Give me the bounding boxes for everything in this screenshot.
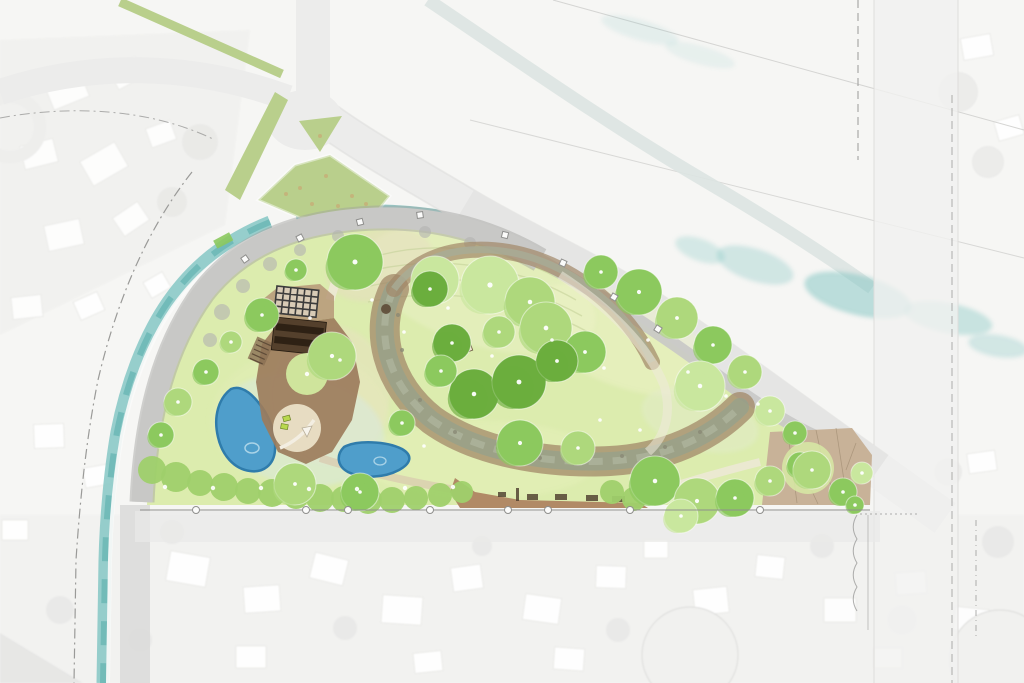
tree xyxy=(846,496,864,514)
meadow-dot xyxy=(446,306,450,310)
context-house xyxy=(236,646,266,668)
meadow-dot xyxy=(724,394,728,398)
tree xyxy=(792,451,831,489)
planting-speckle xyxy=(336,204,340,208)
street-east-vertical xyxy=(874,0,958,683)
context-house xyxy=(553,647,584,671)
tree xyxy=(147,422,174,448)
pergola xyxy=(274,286,319,317)
promenade-texture xyxy=(236,279,250,293)
tree-canopy-shade xyxy=(727,362,754,389)
planting-speckle xyxy=(298,186,302,190)
tree-center-dot xyxy=(768,409,772,413)
tree xyxy=(496,420,543,466)
lawn-dot xyxy=(259,486,263,490)
tree-center-dot xyxy=(768,479,772,483)
lawn-dot xyxy=(163,485,167,489)
tree-center-dot xyxy=(159,433,163,437)
tree-center-dot xyxy=(487,282,492,287)
meadow-dot xyxy=(422,444,426,448)
lawn-dot xyxy=(451,485,455,489)
tree-center-dot xyxy=(698,384,703,389)
site-plan-svg xyxy=(0,0,1024,683)
meadow-dot xyxy=(646,338,650,342)
context-house xyxy=(381,595,423,626)
context-tree-blob xyxy=(157,187,187,217)
tree-center-dot xyxy=(853,503,857,507)
context-house xyxy=(522,594,561,625)
meadow-dot xyxy=(602,366,606,370)
context-house xyxy=(644,540,668,558)
lawn-dot xyxy=(211,486,215,490)
tree-center-dot xyxy=(497,330,501,334)
promenade-texture xyxy=(214,304,230,320)
survey-marker-circle xyxy=(545,507,552,514)
survey-marker-square xyxy=(501,231,508,238)
survey-marker-circle xyxy=(627,507,634,514)
context-house xyxy=(596,565,627,588)
tree-canopy-shade xyxy=(655,305,689,339)
meadow-dot xyxy=(550,338,554,342)
picnic-table xyxy=(555,494,567,500)
tree-canopy-shade xyxy=(273,471,307,505)
tree-center-dot xyxy=(860,471,864,475)
tree-center-dot xyxy=(293,482,297,486)
meadow-dot xyxy=(598,418,602,422)
tree-center-dot xyxy=(517,380,522,385)
tree-canopy-shade xyxy=(326,245,371,290)
tree-canopy-shade xyxy=(388,415,409,436)
context-house xyxy=(243,585,281,613)
tree-canopy-shade xyxy=(460,268,506,314)
tree xyxy=(560,431,595,465)
meadow-dot xyxy=(756,402,760,406)
context-tree-blob xyxy=(333,616,357,640)
tree xyxy=(340,473,379,511)
planting-speckle xyxy=(318,134,322,138)
context-tree-blob xyxy=(972,146,1004,178)
tree xyxy=(754,466,785,496)
tree xyxy=(615,269,662,315)
tree-center-dot xyxy=(518,441,522,445)
tree-center-dot xyxy=(450,341,454,345)
tree xyxy=(850,462,873,484)
tree xyxy=(727,355,762,389)
tree-canopy-shade xyxy=(147,427,168,448)
tree-canopy-shade xyxy=(424,361,450,387)
meadow-dot xyxy=(370,298,374,302)
tree-center-dot xyxy=(229,340,233,344)
context-house xyxy=(413,651,443,674)
tree-center-dot xyxy=(428,287,432,291)
lawn-dot xyxy=(403,486,407,490)
tree-center-dot xyxy=(294,268,298,272)
planting-speckle xyxy=(350,194,354,198)
picnic-table xyxy=(527,494,538,500)
creek-rock xyxy=(620,454,624,458)
tree-center-dot xyxy=(544,326,549,331)
lawn-circle-dot xyxy=(305,372,309,376)
creek-rock xyxy=(698,430,702,434)
tree xyxy=(535,340,578,382)
survey-marker-square xyxy=(417,212,424,219)
context-house xyxy=(755,555,785,580)
creek-rock xyxy=(418,398,422,402)
meadow-dot xyxy=(308,316,312,320)
promenade-texture xyxy=(263,257,277,271)
creek-rock xyxy=(400,348,404,352)
tree-center-dot xyxy=(810,468,814,472)
tree-canopy-shade xyxy=(219,335,237,353)
tree-center-dot xyxy=(743,370,747,374)
tree-center-dot xyxy=(400,421,404,425)
tree xyxy=(693,326,732,364)
promenade-texture xyxy=(203,333,217,347)
tree-canopy-shade xyxy=(693,334,723,364)
planting-speckle xyxy=(284,192,288,196)
context-house xyxy=(34,423,65,448)
tree-center-dot xyxy=(711,343,715,347)
street-south-frontage xyxy=(135,511,880,542)
tree xyxy=(411,271,448,307)
meadow-dot xyxy=(686,370,690,374)
tree-canopy-shade xyxy=(674,371,714,411)
creek-rock xyxy=(663,445,667,449)
tree-canopy-shade xyxy=(482,322,508,348)
survey-marker-circle xyxy=(427,507,434,514)
tree-center-dot xyxy=(637,290,641,294)
context-house xyxy=(11,294,43,319)
tree xyxy=(754,396,785,426)
creek-rock xyxy=(396,313,400,317)
tree xyxy=(284,259,307,281)
tree xyxy=(655,297,698,339)
tree xyxy=(583,255,618,289)
context-tree-blob xyxy=(182,124,218,160)
context-house xyxy=(450,564,483,592)
tree-center-dot xyxy=(472,392,477,397)
hedge-shrub xyxy=(235,478,261,504)
lawn-chair-2 xyxy=(281,424,289,430)
tree xyxy=(219,331,242,353)
tree xyxy=(715,479,754,517)
survey-marker-circle xyxy=(345,507,352,514)
tree-center-dot xyxy=(841,490,845,494)
meadow-dot xyxy=(638,428,642,432)
tree-center-dot xyxy=(439,369,443,373)
hedge-shrub xyxy=(404,486,428,510)
tree-canopy-shade xyxy=(244,305,271,332)
tree-center-dot xyxy=(176,400,180,404)
tree-canopy-shade xyxy=(615,278,652,315)
tree-center-dot xyxy=(675,316,679,320)
tree-canopy-shade xyxy=(411,278,440,307)
promenade-texture xyxy=(419,226,431,238)
tree-canopy-shade xyxy=(448,379,488,419)
hedge-shrub xyxy=(451,481,473,503)
tree xyxy=(674,361,725,411)
tree xyxy=(273,463,316,505)
tree-center-dot xyxy=(330,354,334,358)
tree-canopy-shade xyxy=(284,263,302,281)
survey-marker-circle xyxy=(757,507,764,514)
tree-center-dot xyxy=(576,446,580,450)
tree-center-dot xyxy=(733,496,737,500)
context-house xyxy=(166,551,211,587)
creek-rock xyxy=(453,430,457,434)
tree-canopy-shade xyxy=(192,364,213,385)
hedge-shrub xyxy=(428,483,452,507)
tree-canopy-shade xyxy=(583,262,610,289)
tree-center-dot xyxy=(583,350,587,354)
hedge-shrub xyxy=(600,480,624,504)
tree xyxy=(782,421,807,445)
picnic-table xyxy=(498,492,506,497)
site-plan-canvas xyxy=(0,0,1024,683)
tree xyxy=(629,456,680,506)
tree xyxy=(192,359,219,385)
tree xyxy=(424,355,457,387)
survey-marker-circle xyxy=(193,507,200,514)
tree-center-dot xyxy=(793,431,797,435)
tree-canopy-shade xyxy=(496,429,533,466)
meadow-dot xyxy=(402,330,406,334)
tree-canopy-shade xyxy=(535,348,569,382)
tree-center-dot xyxy=(352,259,357,264)
tree-center-dot xyxy=(679,514,683,518)
tree-canopy-shade xyxy=(340,481,370,511)
tree-canopy-shade xyxy=(782,426,801,445)
tree-center-dot xyxy=(695,499,699,503)
survey-marker-square xyxy=(356,218,363,225)
tree-center-dot xyxy=(599,270,603,274)
boulder-firepit xyxy=(381,304,391,314)
lawn-dot xyxy=(307,487,311,491)
tree xyxy=(163,388,192,416)
tree-canopy-shade xyxy=(491,366,534,409)
context-tree-blob xyxy=(606,618,630,642)
tree-center-dot xyxy=(555,359,559,363)
hedge-shrub xyxy=(187,470,213,496)
tree xyxy=(388,410,415,436)
planting-speckle xyxy=(310,202,314,206)
context-house xyxy=(824,598,856,622)
tree-center-dot xyxy=(653,479,658,484)
lawn-dot xyxy=(355,487,359,491)
tree xyxy=(482,316,515,348)
tree-center-dot xyxy=(260,313,264,317)
survey-marker-circle xyxy=(505,507,512,514)
planting-speckle xyxy=(324,174,328,178)
tree-canopy-shade xyxy=(560,438,587,465)
tree-canopy-shade xyxy=(715,487,745,517)
planting-speckle xyxy=(364,202,368,206)
context-tree-blob xyxy=(982,526,1014,558)
sand-play-circle xyxy=(273,404,321,452)
meadow-dot xyxy=(490,354,494,358)
picnic-table xyxy=(516,488,519,501)
tree-canopy-shade xyxy=(754,472,778,496)
context-house xyxy=(967,450,998,474)
survey-marker-circle xyxy=(303,507,310,514)
tree-canopy-shade xyxy=(792,459,822,489)
context-house xyxy=(960,34,993,61)
tree-canopy-shade xyxy=(850,466,868,484)
tree-center-dot xyxy=(358,490,362,494)
tree-center-dot xyxy=(528,300,533,305)
picnic-table xyxy=(586,495,598,501)
meadow-dot xyxy=(338,358,342,362)
tree xyxy=(663,499,698,533)
promenade-texture xyxy=(294,244,306,256)
tree xyxy=(307,332,356,380)
tree-canopy-shade xyxy=(629,466,669,506)
context-house xyxy=(2,520,28,540)
hedge-shrub xyxy=(379,487,405,513)
tree-center-dot xyxy=(204,370,208,374)
tree-canopy-shade xyxy=(163,394,185,416)
context-tree-blob xyxy=(46,596,74,624)
tree-canopy-shade xyxy=(846,500,860,514)
tree xyxy=(244,298,279,332)
